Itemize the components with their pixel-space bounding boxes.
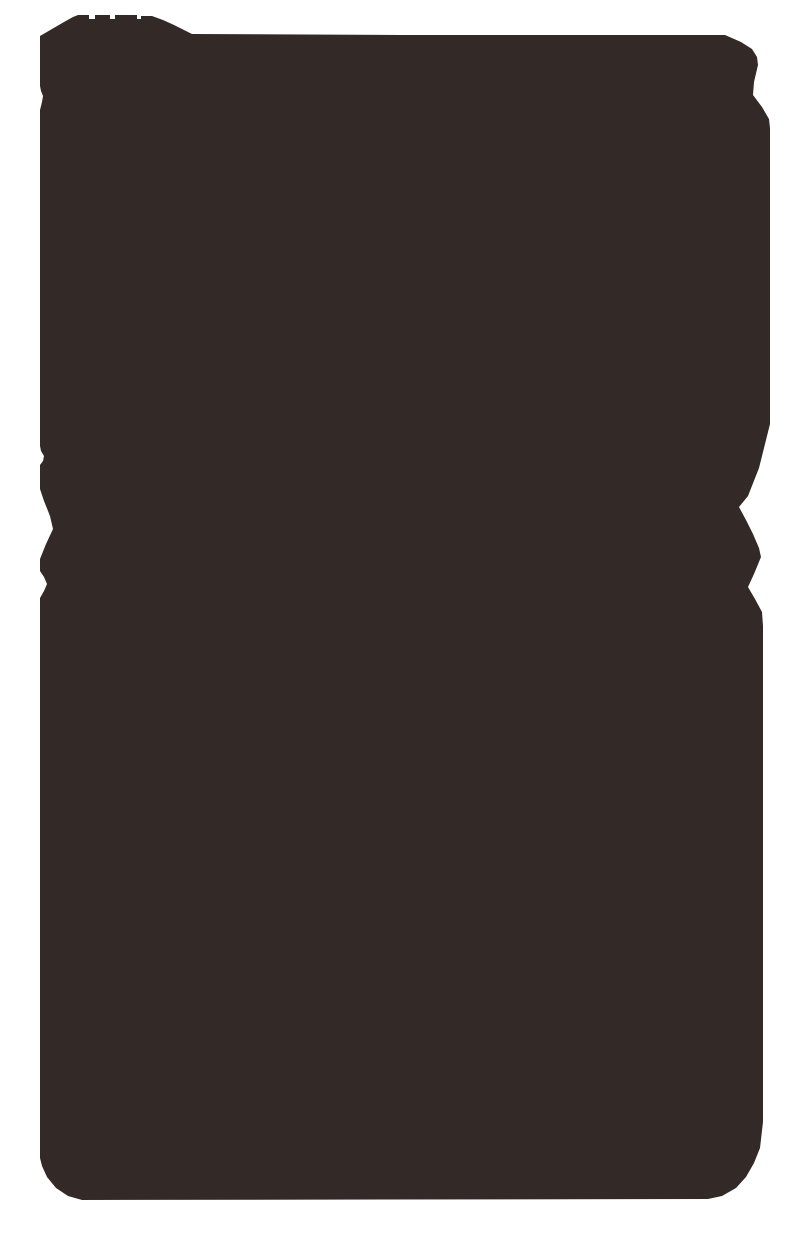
silhouette-svg bbox=[0, 0, 800, 1240]
photo-canvas bbox=[0, 0, 800, 1240]
silhouette-shape bbox=[40, 15, 770, 1200]
